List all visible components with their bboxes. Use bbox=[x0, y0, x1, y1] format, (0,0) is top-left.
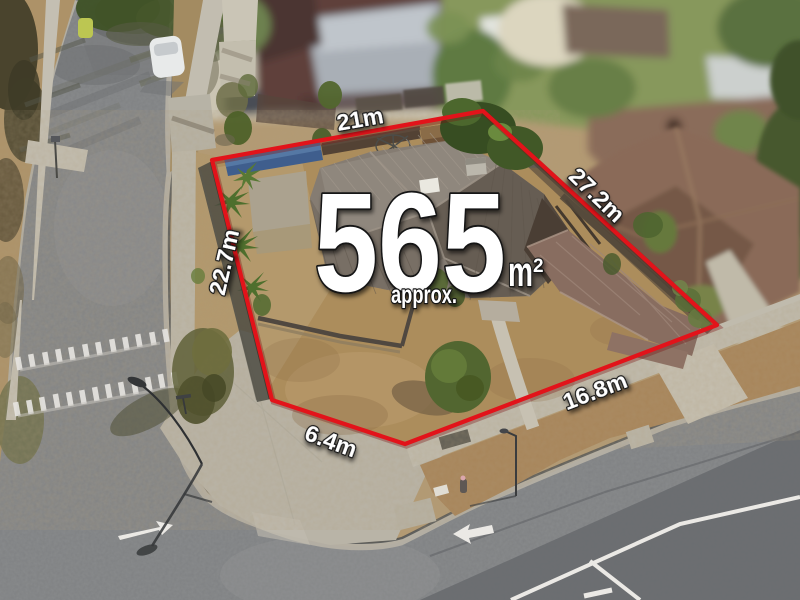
svg-text:2: 2 bbox=[533, 256, 544, 277]
svg-text:m: m bbox=[508, 248, 533, 295]
svg-text:approx.: approx. bbox=[391, 281, 457, 309]
